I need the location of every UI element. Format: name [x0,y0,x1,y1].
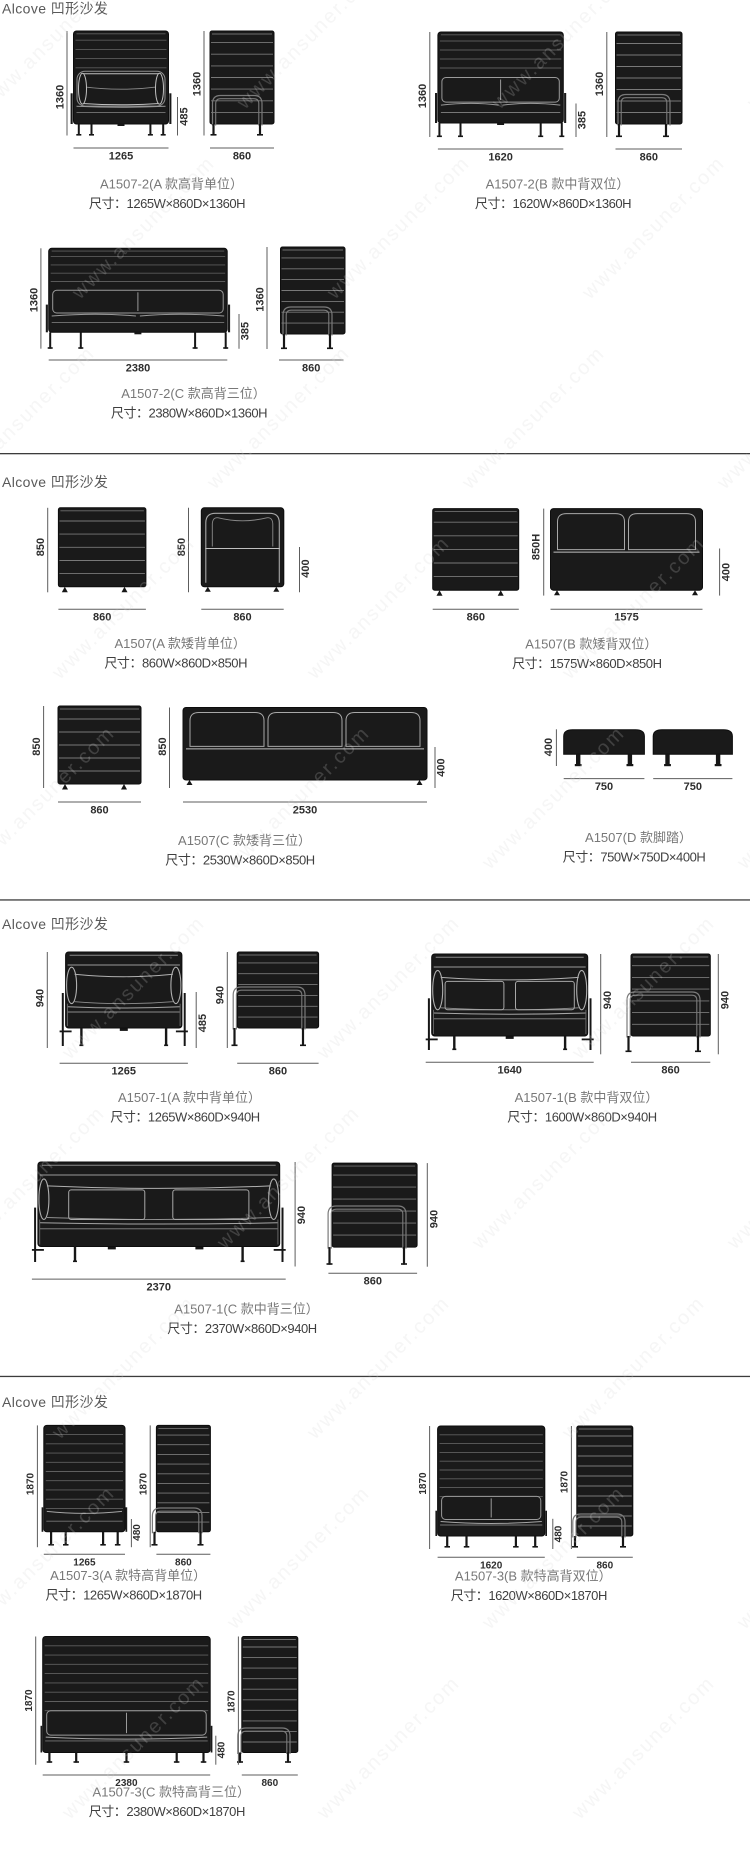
svg-text:1265: 1265 [73,1557,96,1568]
svg-text:尺寸：1265W×860D×940H: 尺寸：1265W×860D×940H [110,1110,259,1125]
svg-text:940: 940 [34,989,46,1007]
svg-text:A1507(D 款脚踏）: A1507(D 款脚踏） [585,830,692,845]
svg-text:750: 750 [684,781,702,793]
svg-text:1360: 1360 [417,84,429,108]
svg-text:尺寸：1265W×860D×1870H: 尺寸：1265W×860D×1870H [45,1588,201,1603]
svg-text:A1507-3(C 款特高背三位）: A1507-3(C 款特高背三位） [93,1785,250,1800]
svg-text:860: 860 [364,1276,382,1288]
svg-text:860: 860 [269,1066,287,1078]
svg-text:A1507(A 款矮背单位）: A1507(A 款矮背单位） [114,636,246,651]
svg-text:485: 485 [178,107,190,125]
svg-text:2380: 2380 [126,362,150,374]
svg-text:750: 750 [595,781,613,793]
svg-text:400: 400 [435,758,447,776]
svg-text:2370: 2370 [147,1282,171,1294]
svg-text:940: 940 [296,1206,308,1224]
svg-text:1870: 1870 [227,1690,238,1713]
svg-text:940: 940 [719,991,731,1009]
svg-text:400: 400 [543,738,555,756]
svg-text:1640: 1640 [497,1065,521,1077]
svg-text:1620: 1620 [488,151,512,163]
svg-text:400: 400 [300,559,312,577]
svg-text:A1507-2(C 款高背三位）: A1507-2(C 款高背三位） [121,386,265,401]
svg-text:1360: 1360 [54,85,66,109]
svg-text:1870: 1870 [418,1472,429,1495]
svg-text:1870: 1870 [26,1472,37,1495]
svg-text:尺寸：2380W×860D×1360H: 尺寸：2380W×860D×1360H [111,406,267,421]
svg-text:860: 860 [640,151,658,163]
svg-text:860: 860 [467,612,485,624]
svg-text:尺寸：1620W×860D×1360H: 尺寸：1620W×860D×1360H [475,196,631,211]
svg-text:尺寸：750W×750D×400H: 尺寸：750W×750D×400H [563,850,706,865]
svg-text:850: 850 [157,737,169,755]
svg-text:A1507-2(B 款中背双位）: A1507-2(B 款中背双位） [486,177,630,192]
svg-text:385: 385 [576,111,588,129]
svg-text:Alcove 凹形沙发: Alcove 凹形沙发 [2,474,108,490]
svg-text:850: 850 [31,737,43,755]
svg-text:1870: 1870 [138,1472,149,1495]
svg-text:尺寸：2380W×860D×1870H: 尺寸：2380W×860D×1870H [89,1804,245,1819]
svg-text:850H: 850H [530,534,542,560]
svg-text:385: 385 [239,322,251,340]
svg-text:480: 480 [217,1741,228,1758]
svg-text:860: 860 [233,612,251,624]
svg-text:1870: 1870 [24,1689,35,1712]
svg-text:860: 860 [661,1065,679,1077]
svg-text:860: 860 [175,1557,192,1568]
svg-text:1870: 1870 [560,1470,571,1493]
svg-text:1265: 1265 [109,150,133,162]
svg-text:400: 400 [720,563,732,581]
svg-text:860: 860 [233,150,251,162]
svg-text:A1507-3(A 款特高背单位）: A1507-3(A 款特高背单位） [50,1568,206,1583]
svg-text:1360: 1360 [28,288,40,312]
svg-text:A1507-1(A 款中背单位）: A1507-1(A 款中背单位） [118,1090,261,1105]
svg-text:850: 850 [35,538,47,556]
svg-text:860: 860 [90,804,108,816]
svg-text:尺寸：2370W×860D×940H: 尺寸：2370W×860D×940H [167,1321,316,1336]
svg-text:480: 480 [132,1524,143,1541]
svg-text:A1507-1(B 款中背双位）: A1507-1(B 款中背双位） [515,1090,659,1105]
svg-text:860: 860 [261,1778,278,1789]
svg-text:Alcove 凹形沙发: Alcove 凹形沙发 [2,916,108,932]
svg-text:1360: 1360 [254,287,266,311]
svg-text:940: 940 [214,986,226,1004]
svg-text:485: 485 [197,1014,209,1032]
svg-text:940: 940 [428,1210,440,1228]
svg-text:尺寸：1600W×860D×940H: 尺寸：1600W×860D×940H [507,1110,656,1125]
svg-text:1360: 1360 [191,72,203,96]
svg-text:1360: 1360 [594,72,606,96]
svg-text:1265: 1265 [112,1066,136,1078]
svg-text:尺寸：860W×860D×850H: 尺寸：860W×860D×850H [104,656,247,671]
